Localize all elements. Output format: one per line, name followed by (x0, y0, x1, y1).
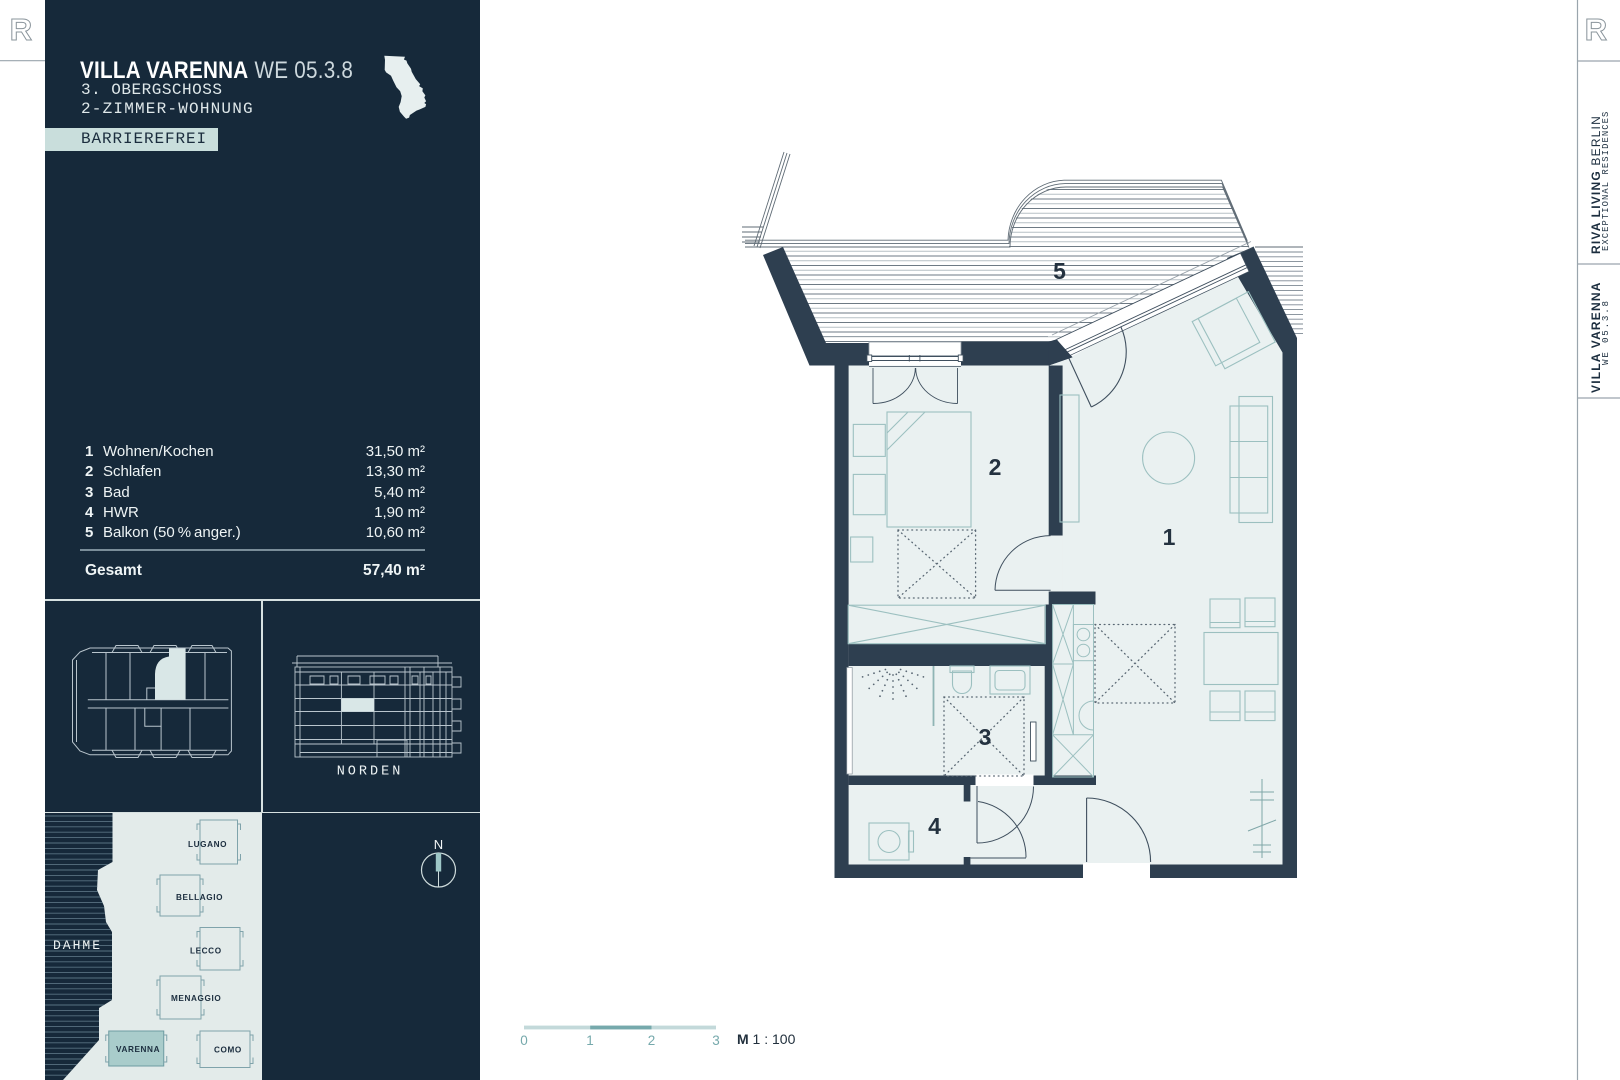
svg-text:VARENNA: VARENNA (116, 1045, 160, 1054)
svg-text:5: 5 (1053, 258, 1066, 284)
svg-text:M 1 : 100: M 1 : 100 (737, 1031, 796, 1047)
svg-text:MENAGGIO: MENAGGIO (171, 994, 221, 1003)
svg-text:1: 1 (1163, 524, 1176, 550)
svg-text:3: 3 (979, 724, 992, 750)
svg-text:2: 2 (648, 1033, 656, 1048)
svg-text:R: R (10, 12, 32, 47)
svg-text:LECCO: LECCO (190, 947, 222, 956)
svg-text:LUGANO: LUGANO (188, 840, 227, 849)
svg-text:N: N (434, 837, 443, 852)
svg-text:R: R (1585, 12, 1607, 47)
svg-text:DAHME: DAHME (53, 938, 102, 953)
svg-text:BELLAGIO: BELLAGIO (176, 893, 223, 902)
svg-text:EXCEPTIONAL RESIDENCES: EXCEPTIONAL RESIDENCES (1601, 111, 1611, 251)
svg-text:1: 1 (586, 1033, 594, 1048)
svg-text:0: 0 (520, 1033, 528, 1048)
svg-text:3: 3 (712, 1033, 720, 1048)
svg-text:NORDEN: NORDEN (337, 765, 404, 780)
svg-text:4: 4 (928, 813, 941, 839)
svg-text:WE 05.3.8: WE 05.3.8 (1600, 299, 1611, 365)
svg-text:COMO: COMO (214, 1046, 242, 1055)
svg-text:2: 2 (989, 454, 1002, 480)
